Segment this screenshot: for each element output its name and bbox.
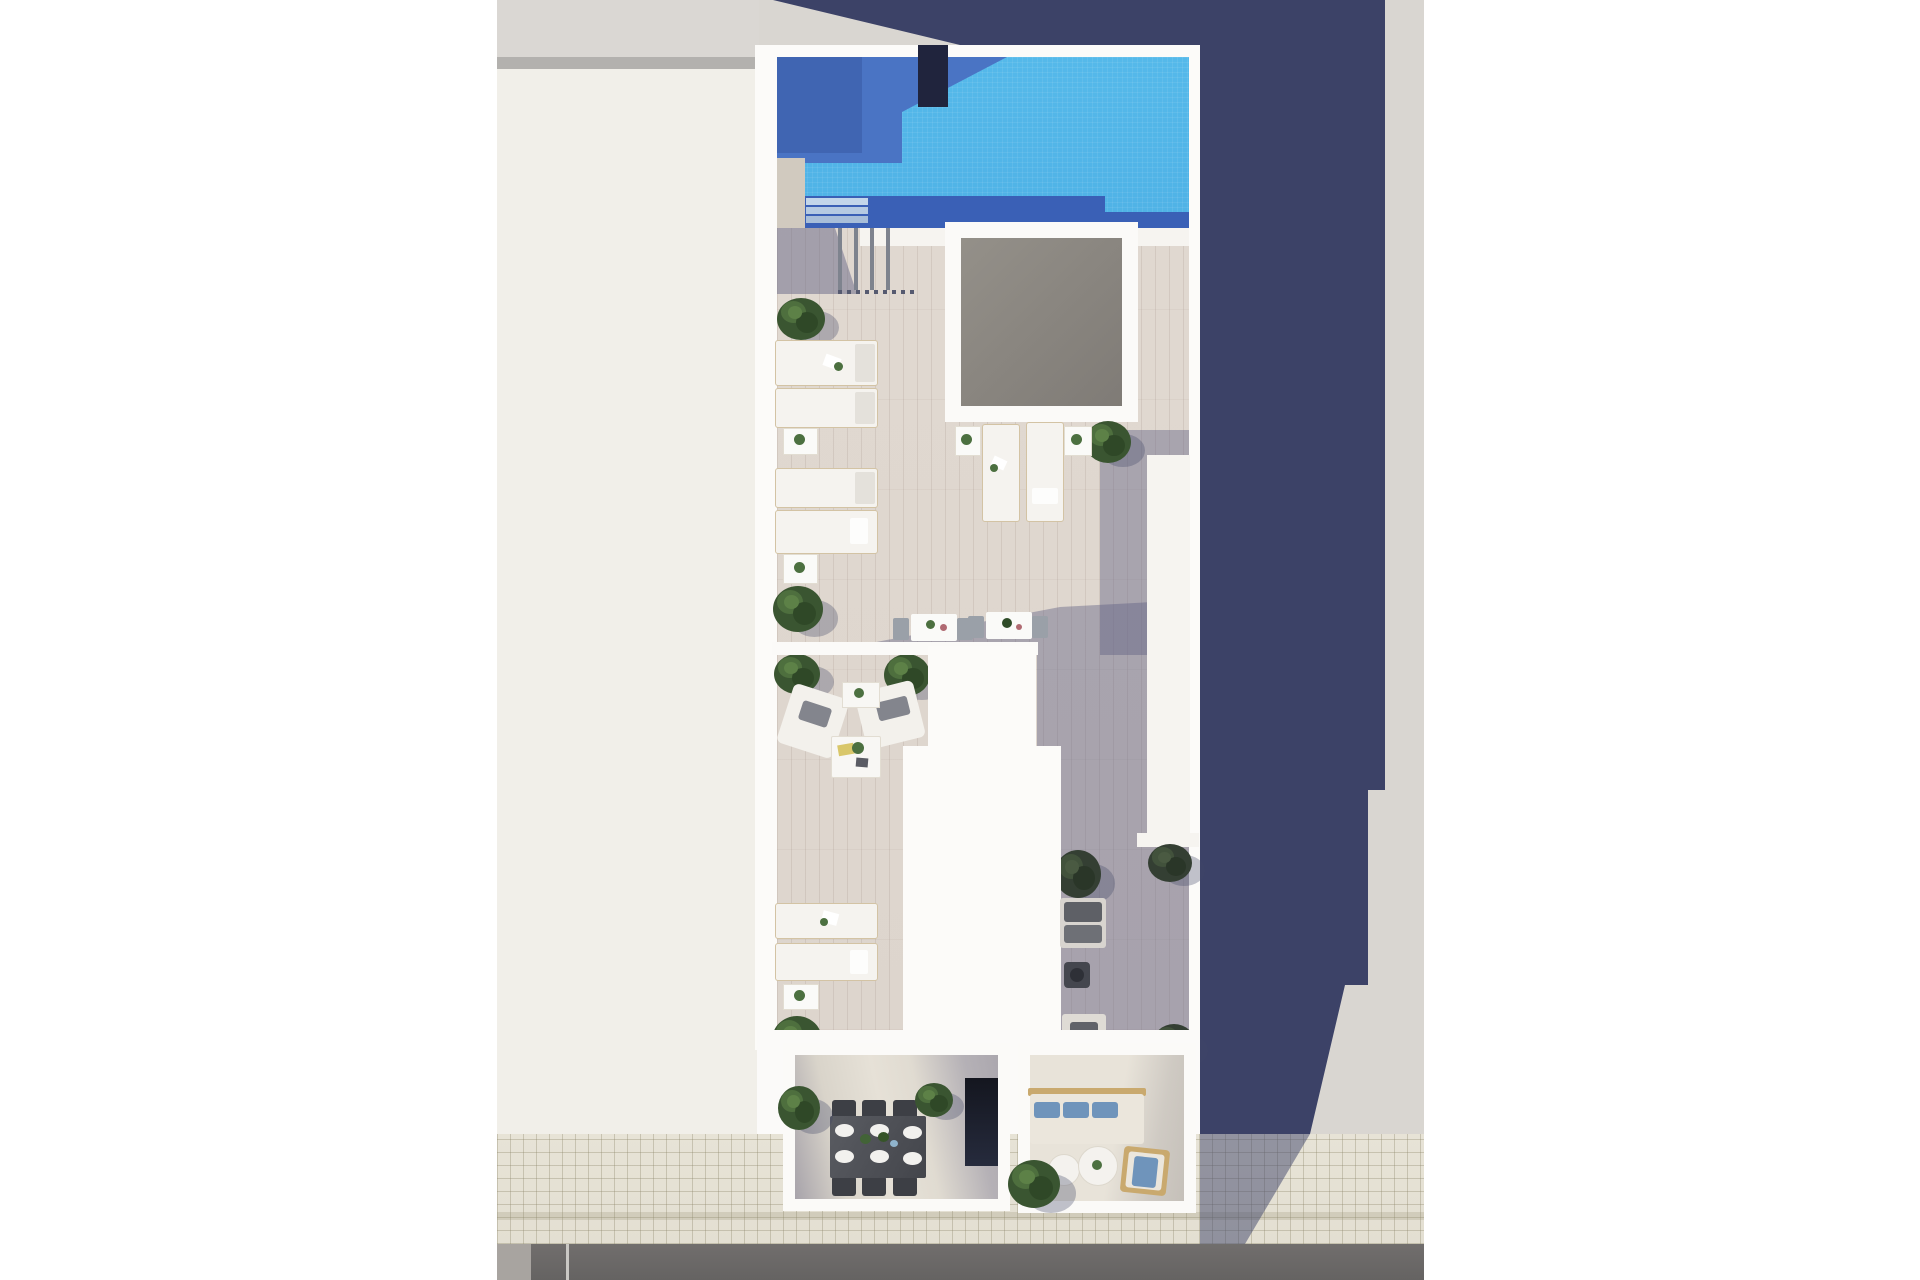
- fire-pit-bowl: [1070, 968, 1084, 982]
- pool-step-1: [806, 198, 868, 205]
- bush-shadow-right-foliage-3: [1158, 852, 1171, 863]
- dining-chair-bottom-2: [862, 1176, 886, 1196]
- sun-lounger-6-pillow: [850, 950, 868, 974]
- pool-side-platform: [777, 158, 805, 228]
- dining-plate-3: [903, 1126, 922, 1139]
- sun-lounger-1-plant: [834, 362, 843, 371]
- left-building-roof-stripe: [497, 57, 759, 69]
- stair-bulkhead-upper: [928, 646, 1036, 746]
- side-table-1-plant: [794, 434, 805, 445]
- bistro-1-decor: [940, 624, 947, 631]
- sofa-cushion-2: [1063, 1102, 1089, 1118]
- sun-lounger-8: [1026, 422, 1064, 522]
- sun-lounger-1-backrest: [855, 344, 875, 382]
- bush-pool-deck-foliage-3: [788, 306, 802, 319]
- dining-plate-1: [835, 1124, 854, 1137]
- bush-mid-left-foliage-3: [784, 595, 799, 609]
- pool-step-2: [806, 207, 868, 214]
- bush-lounge-left-foliage-3: [784, 662, 798, 674]
- dining-plate-5: [870, 1150, 889, 1163]
- bush-skylight-right-foliage-3: [1095, 429, 1109, 442]
- sun-lounger-3-backrest: [855, 472, 875, 504]
- bush-shadow-upper-foliage-3: [1065, 860, 1079, 874]
- bush-lounge-right-foliage-3: [894, 662, 908, 675]
- sofa-cushion-1: [1034, 1102, 1060, 1118]
- road-lane-line: [566, 1244, 569, 1280]
- side-table-3-plant: [794, 990, 805, 1001]
- side-table-2-plant: [794, 562, 805, 573]
- dining-chair-bottom-1: [832, 1176, 856, 1196]
- shade-sofa-cushion-2: [1064, 925, 1102, 943]
- pool-shadow-left-deep: [777, 57, 862, 153]
- bistro-2-decor: [1016, 624, 1022, 630]
- sun-lounger-4-pillow: [850, 518, 868, 544]
- road-curb-strip: [497, 1244, 531, 1280]
- sidewalk-band: [497, 1212, 1424, 1220]
- dining-centerpiece-plant-2: [878, 1132, 889, 1142]
- side-table-4-plant: [961, 434, 972, 445]
- sun-lounger-2-backrest: [855, 392, 875, 424]
- coffee-table-plant: [852, 742, 864, 754]
- dining-pitcher: [890, 1140, 898, 1147]
- bistro-2-chair-right: [1032, 616, 1048, 638]
- left-building-wall: [497, 69, 759, 1134]
- dining-plate-4: [835, 1150, 854, 1163]
- bistro-1-chair-left: [893, 618, 909, 640]
- pool-railing-post-1: [838, 228, 842, 290]
- left-building-roof-band: [497, 0, 759, 57]
- bistro-1-plant: [926, 620, 935, 629]
- sun-lounger-5-plant: [820, 918, 828, 926]
- dining-bush-left-foliage-3: [787, 1095, 800, 1108]
- sofa-cushion-3: [1092, 1102, 1118, 1118]
- side-table-5-plant: [1071, 434, 1082, 445]
- dining-chair-bottom-3: [893, 1176, 917, 1196]
- sun-lounger-7: [982, 424, 1020, 522]
- bistro-2-chair-left: [968, 616, 984, 638]
- sofa-terrace-bush-foliage-3: [1019, 1170, 1035, 1184]
- lounge-side-table-plant: [854, 688, 864, 698]
- pool-railing-shadow: [838, 290, 914, 294]
- pool-railing-post-3: [870, 228, 874, 290]
- bistro-2-plant: [1002, 618, 1012, 628]
- pool-equipment-block: [918, 45, 948, 107]
- skylight-glass: [961, 238, 1122, 406]
- pool-step-3: [806, 216, 868, 223]
- dining-centerpiece-plant-1: [860, 1134, 871, 1144]
- bistro-1-table: [911, 614, 957, 641]
- coffee-table-tray: [856, 757, 869, 767]
- road: [497, 1244, 1424, 1280]
- dining-terrace-doorway: [965, 1078, 998, 1166]
- round-table-plant: [1092, 1160, 1102, 1170]
- wood-armchair-cushion: [1131, 1156, 1158, 1188]
- scene: [0, 0, 1920, 1280]
- dining-bush-right-foliage-3: [923, 1090, 934, 1100]
- pool-railing-post-4: [886, 228, 890, 290]
- pool-railing-post-2: [854, 228, 858, 290]
- dining-plate-6: [903, 1152, 922, 1165]
- right-ledge-wall: [1147, 455, 1190, 835]
- sun-lounger-8-pillow: [1032, 488, 1058, 504]
- shade-sofa-cushion-1: [1064, 902, 1102, 922]
- sun-lounger-7-plant: [990, 464, 998, 472]
